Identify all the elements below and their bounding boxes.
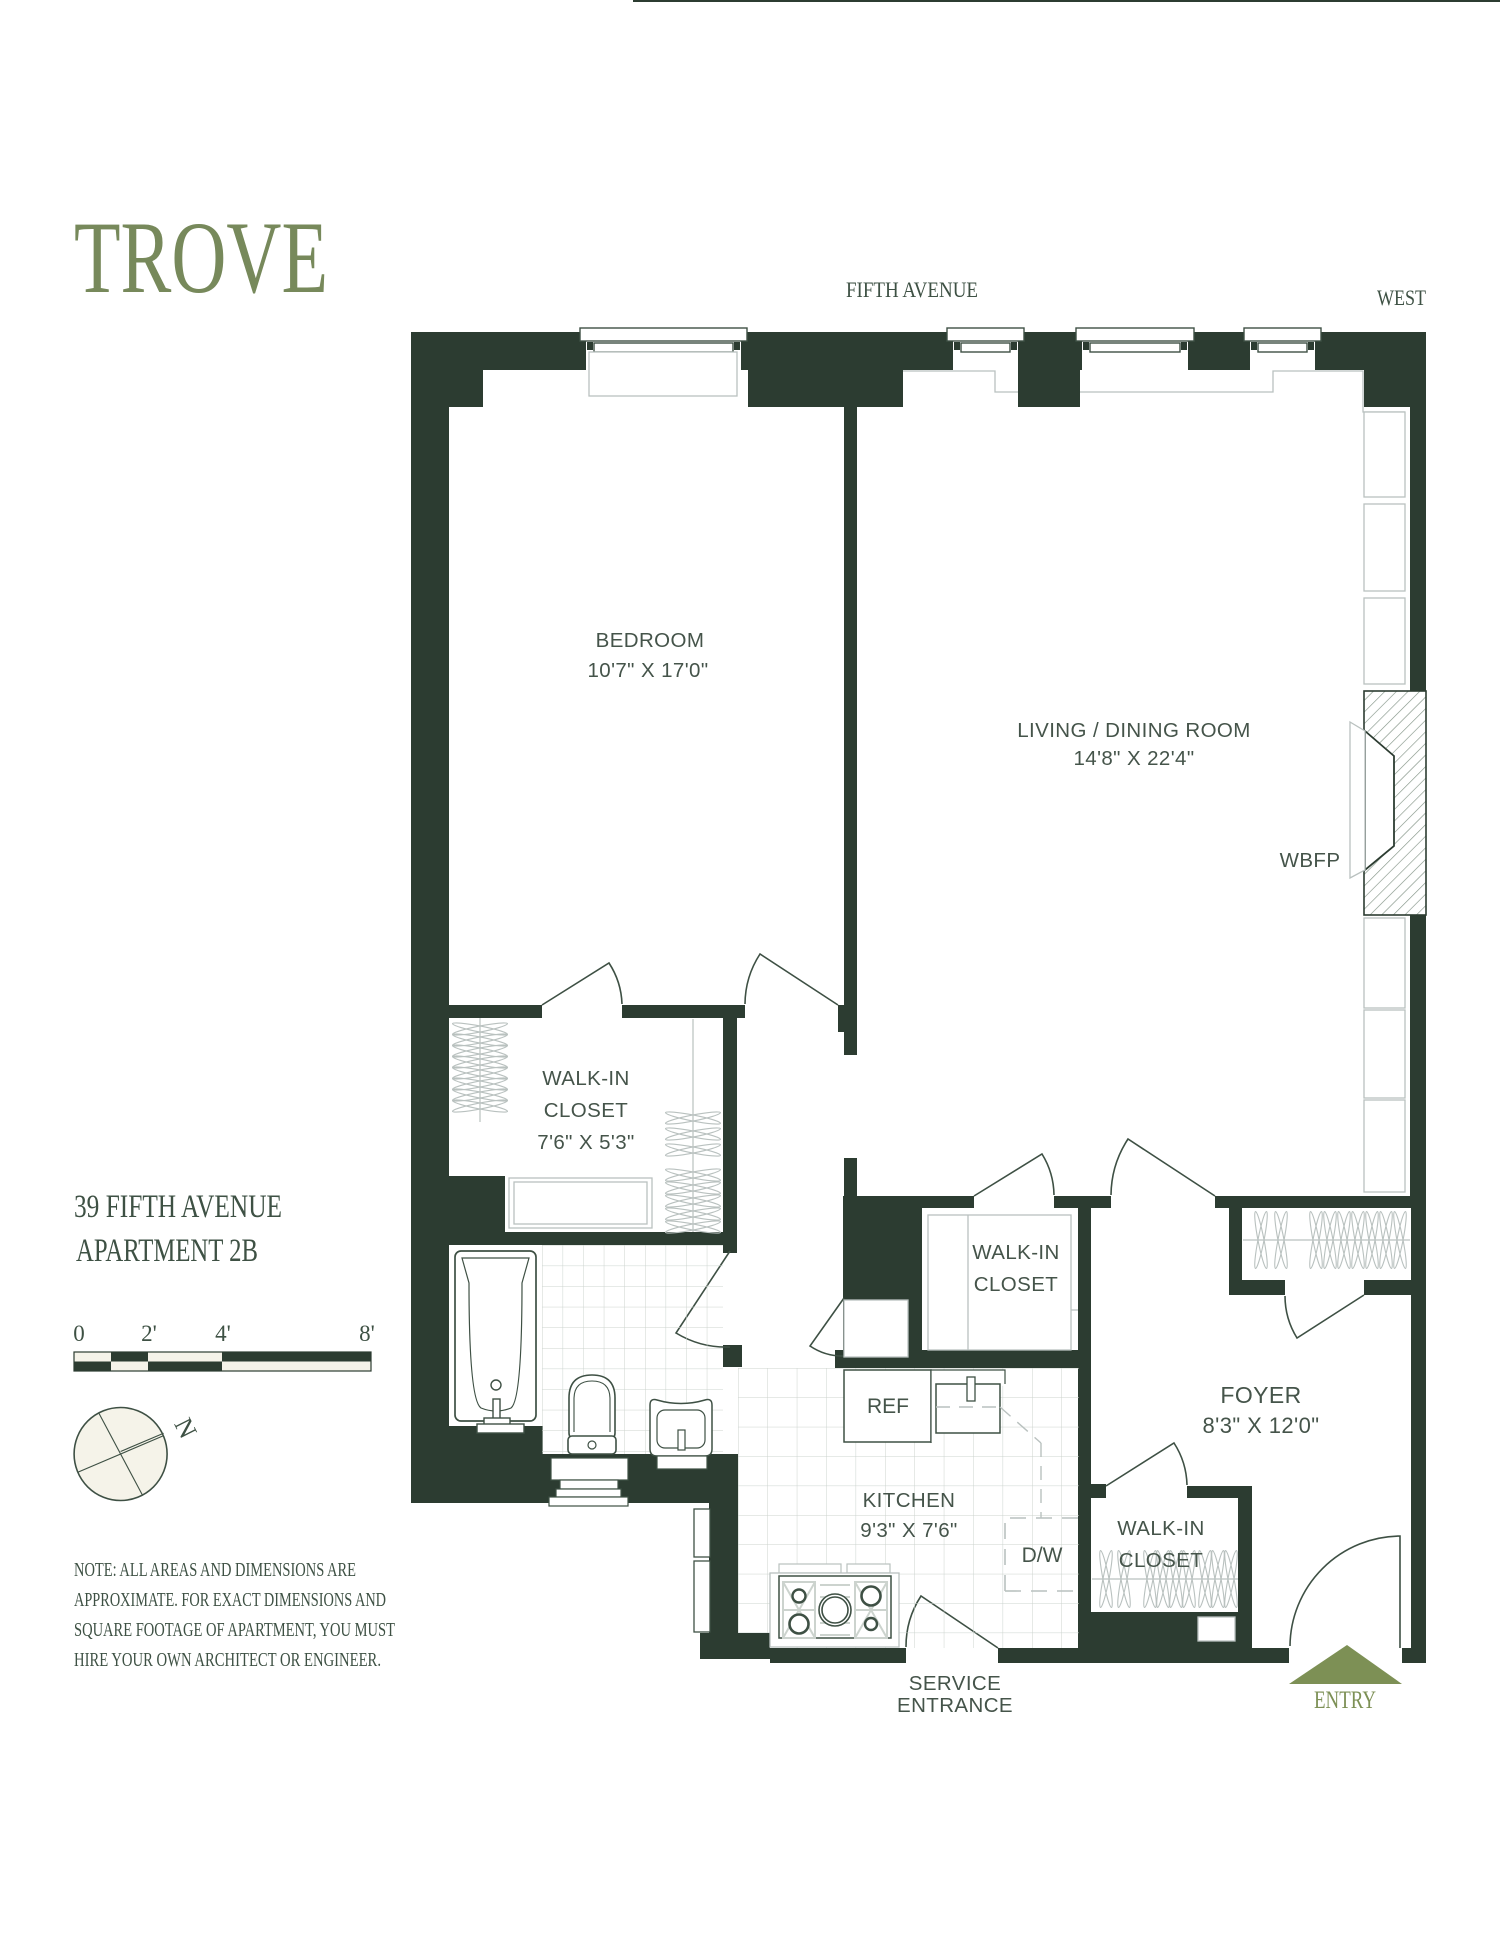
svg-text:9'3" X 7'6": 9'3" X 7'6" [860, 1519, 957, 1542]
svg-text:CLOSET: CLOSET [1119, 1549, 1203, 1572]
svg-text:D/W: D/W [1022, 1544, 1063, 1567]
svg-text:ENTRANCE: ENTRANCE [897, 1694, 1013, 1717]
svg-text:BEDROOM: BEDROOM [596, 629, 705, 652]
svg-text:WALK-IN: WALK-IN [1117, 1517, 1204, 1540]
svg-text:2': 2' [141, 1321, 157, 1346]
svg-text:REF: REF [867, 1395, 909, 1418]
svg-text:39 FIFTH AVENUE: 39 FIFTH AVENUE [74, 1189, 282, 1225]
svg-text:HIRE YOUR OWN ARCHITECT OR ENG: HIRE YOUR OWN ARCHITECT OR ENGINEER. [74, 1649, 381, 1671]
svg-text:WEST: WEST [1377, 285, 1426, 310]
svg-text:10'7" X 17'0": 10'7" X 17'0" [587, 659, 708, 682]
svg-text:8': 8' [359, 1321, 375, 1346]
svg-text:ENTRY: ENTRY [1314, 1687, 1376, 1714]
svg-text:7'6" X 5'3": 7'6" X 5'3" [537, 1131, 634, 1154]
svg-text:WALK-IN: WALK-IN [972, 1241, 1059, 1264]
svg-text:APPROXIMATE. FOR EXACT DIMENSI: APPROXIMATE. FOR EXACT DIMENSIONS AND [74, 1589, 386, 1611]
svg-text:SERVICE: SERVICE [909, 1672, 1001, 1695]
svg-text:WALK-IN: WALK-IN [542, 1067, 629, 1090]
svg-text:4': 4' [215, 1321, 231, 1346]
svg-text:0: 0 [73, 1321, 85, 1346]
svg-text:SQUARE FOOTAGE OF APARTMENT, Y: SQUARE FOOTAGE OF APARTMENT, YOU MUST [74, 1619, 395, 1641]
svg-text:CLOSET: CLOSET [544, 1099, 628, 1122]
svg-text:NOTE: ALL AREAS AND DIMENSIONS: NOTE: ALL AREAS AND DIMENSIONS ARE [74, 1559, 356, 1581]
svg-text:APARTMENT 2B: APARTMENT 2B [76, 1233, 258, 1269]
svg-text:14'8" X 22'4": 14'8" X 22'4" [1073, 747, 1194, 770]
svg-text:FIFTH AVENUE: FIFTH AVENUE [846, 277, 978, 302]
svg-text:TROVE: TROVE [74, 201, 328, 315]
svg-text:8'3" X 12'0": 8'3" X 12'0" [1203, 1413, 1320, 1438]
svg-text:KITCHEN: KITCHEN [863, 1489, 956, 1512]
svg-text:LIVING / DINING ROOM: LIVING / DINING ROOM [1017, 719, 1251, 742]
svg-text:WBFP: WBFP [1280, 849, 1341, 872]
svg-text:FOYER: FOYER [1220, 1382, 1301, 1408]
svg-text:CLOSET: CLOSET [974, 1273, 1058, 1296]
